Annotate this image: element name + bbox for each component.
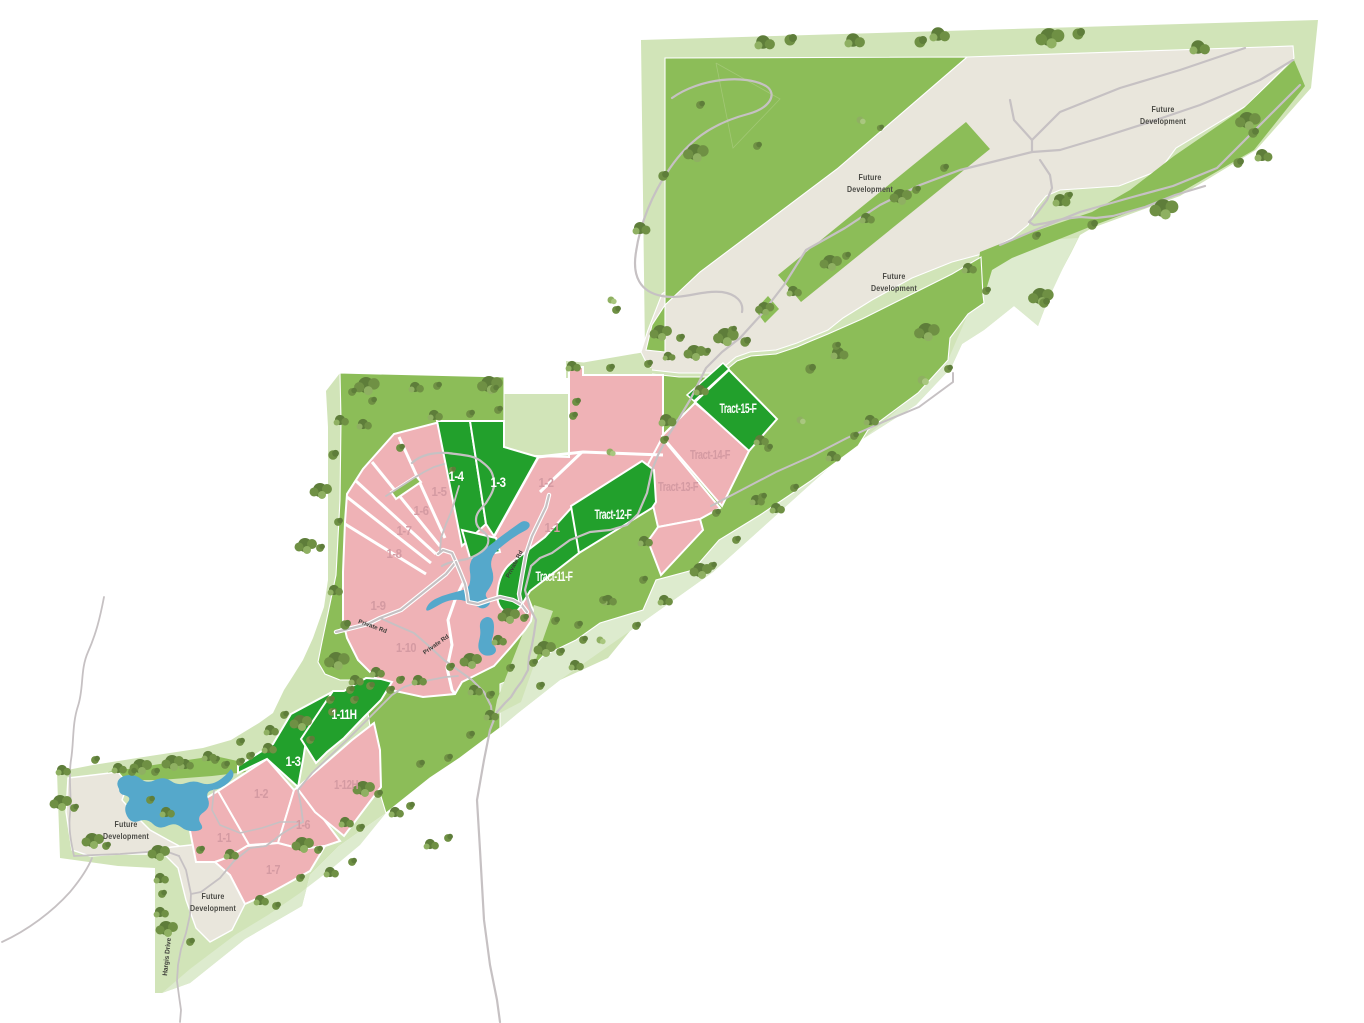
svg-text:Tract-12-F: Tract-12-F	[595, 507, 632, 522]
svg-text:Development: Development	[847, 185, 893, 194]
svg-text:1-6: 1-6	[414, 503, 429, 518]
svg-text:Tract-15-F: Tract-15-F	[720, 401, 757, 416]
svg-text:1-3: 1-3	[286, 754, 302, 769]
svg-text:1-2: 1-2	[539, 475, 554, 490]
svg-text:1-2: 1-2	[254, 787, 269, 801]
svg-text:1-10: 1-10	[396, 640, 416, 655]
svg-text:Tract-14-F: Tract-14-F	[690, 448, 731, 462]
svg-text:1-12H: 1-12H	[334, 778, 358, 792]
svg-text:Future: Future	[115, 820, 138, 829]
svg-text:1-6: 1-6	[296, 818, 311, 832]
svg-text:1-3: 1-3	[491, 475, 507, 490]
svg-text:1-4: 1-4	[449, 469, 465, 484]
svg-text:Future: Future	[883, 272, 906, 281]
svg-text:Future: Future	[859, 173, 882, 182]
svg-text:1-1: 1-1	[545, 520, 560, 535]
svg-text:Future: Future	[202, 892, 225, 901]
svg-text:1-1: 1-1	[217, 831, 232, 845]
svg-text:1-8: 1-8	[387, 546, 402, 561]
svg-text:Development: Development	[1140, 117, 1186, 126]
svg-text:Tract-13-F: Tract-13-F	[658, 480, 699, 494]
svg-text:Development: Development	[190, 904, 236, 913]
svg-text:1-5: 1-5	[432, 484, 447, 499]
svg-text:1-11H: 1-11H	[332, 707, 357, 722]
svg-text:1-9: 1-9	[371, 598, 386, 613]
svg-text:Tract-11-F: Tract-11-F	[536, 569, 573, 584]
svg-text:Development: Development	[103, 832, 149, 841]
svg-text:Future: Future	[1152, 105, 1175, 114]
svg-text:Development: Development	[871, 284, 917, 293]
svg-text:1-7: 1-7	[397, 523, 412, 538]
svg-text:1-7: 1-7	[266, 863, 281, 877]
